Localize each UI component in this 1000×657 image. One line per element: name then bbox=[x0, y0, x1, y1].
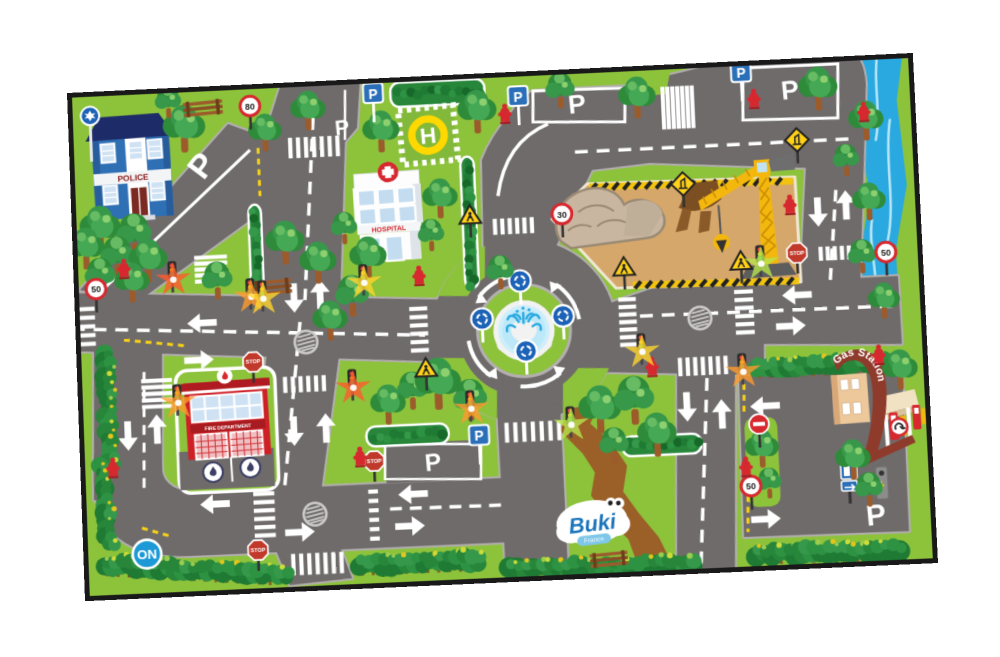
svg-text:ON: ON bbox=[137, 547, 158, 563]
svg-text:80: 80 bbox=[245, 101, 255, 111]
svg-text:50: 50 bbox=[91, 284, 101, 294]
svg-text:H: H bbox=[419, 123, 438, 149]
svg-text:STOP: STOP bbox=[246, 359, 261, 366]
svg-text:P: P bbox=[513, 89, 523, 104]
svg-text:STOP: STOP bbox=[251, 547, 266, 554]
svg-text:P: P bbox=[368, 86, 378, 101]
svg-text:P: P bbox=[424, 449, 443, 478]
svg-text:STOP: STOP bbox=[367, 458, 382, 465]
svg-text:P: P bbox=[736, 65, 746, 80]
svg-text:50: 50 bbox=[746, 481, 757, 492]
svg-text:30: 30 bbox=[557, 209, 567, 219]
svg-text:P: P bbox=[474, 428, 484, 444]
svg-text:P: P bbox=[780, 74, 801, 106]
svg-text:50: 50 bbox=[881, 247, 892, 258]
svg-text:P: P bbox=[334, 115, 351, 140]
svg-text:STOP: STOP bbox=[789, 250, 804, 257]
